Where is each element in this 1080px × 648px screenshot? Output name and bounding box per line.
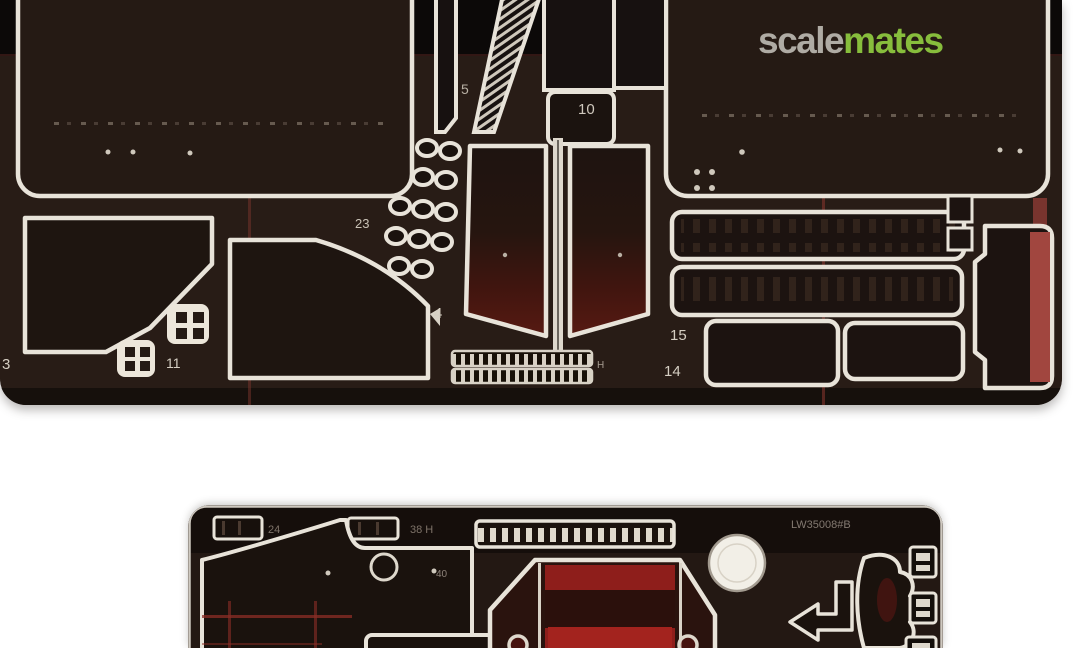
flap-dot-left <box>503 253 507 257</box>
panel-ring-right <box>679 636 697 648</box>
watermark-scale: scale <box>758 20 843 61</box>
strip-mark-h: H <box>597 360 604 371</box>
plate-dot-a <box>326 571 331 576</box>
hinge-comb-strip <box>476 521 674 547</box>
part-label-3: 3 <box>2 356 10 373</box>
part-label-15: 15 <box>670 327 687 344</box>
part-label-23: 23 <box>355 216 369 231</box>
fender-flap-left <box>466 146 546 336</box>
step-part-1 <box>948 196 972 222</box>
box2-tick-b <box>376 522 379 535</box>
part-label-38h: 38 H <box>410 524 433 536</box>
part-label-10: 10 <box>578 101 595 118</box>
red-window-bright-band <box>548 627 672 648</box>
curved-part-red-core <box>877 578 897 622</box>
center-block-b <box>614 0 666 88</box>
watermark-mates: mates <box>843 20 942 61</box>
center-block-a <box>544 0 614 90</box>
box1-tick-b <box>238 521 241 535</box>
photo-etch-product-photo: 10 5 23 H 4 <box>0 0 1080 648</box>
red-backing-strip <box>1030 232 1050 382</box>
rivet-row-left <box>48 118 388 126</box>
small-box-2 <box>845 323 963 379</box>
hole-plate-1 <box>167 304 209 344</box>
red-etch-line-v1 <box>228 601 231 648</box>
red-etch-line-v2 <box>314 601 317 648</box>
deck-panel-left <box>18 0 412 196</box>
fender-flap-right <box>570 146 648 336</box>
red-window-dark-band <box>545 590 675 628</box>
photoetch-fret-bottom: 24 38 H LW35008#B 40 <box>188 505 943 648</box>
long-strip-1-ridges <box>681 219 955 252</box>
tread-strip-1 <box>452 351 592 366</box>
box2-tick-a <box>358 522 361 535</box>
part-label-24: 24 <box>268 524 280 536</box>
small-hatch-box-2 <box>348 518 398 539</box>
scalemates-watermark: scalemates <box>758 22 943 59</box>
tread-strip-2 <box>452 369 592 383</box>
center-divider-core <box>557 140 559 352</box>
part-label-14: 14 <box>664 363 681 380</box>
panel-inner-line-right <box>679 563 682 648</box>
sheet-code-text: LW35008#B <box>791 519 851 531</box>
red-etch-line-h1 <box>202 615 352 618</box>
rivet-row-right <box>700 112 1025 120</box>
panel-ring-left <box>509 636 527 648</box>
long-strip-2-ridges <box>681 274 953 308</box>
part-label-40: 40 <box>436 569 448 580</box>
flap-dot-right <box>618 253 622 257</box>
part-label-5: 5 <box>461 81 469 97</box>
hole-plate-2 <box>117 340 155 377</box>
panel-inner-line-left <box>538 563 541 648</box>
red-etch-line-h2 <box>202 643 322 645</box>
part-label-11: 11 <box>166 355 181 371</box>
box1-tick-a <box>222 521 225 535</box>
fret-bottom-shade <box>0 388 1062 405</box>
mast-strip-part <box>436 0 456 132</box>
bottom-fret-drawing: 24 38 H LW35008#B 40 <box>188 505 943 648</box>
step-part-2 <box>948 228 972 250</box>
small-box-1 <box>706 321 838 385</box>
part-box-10 <box>548 92 614 144</box>
part-label-4: 4 <box>434 305 442 322</box>
